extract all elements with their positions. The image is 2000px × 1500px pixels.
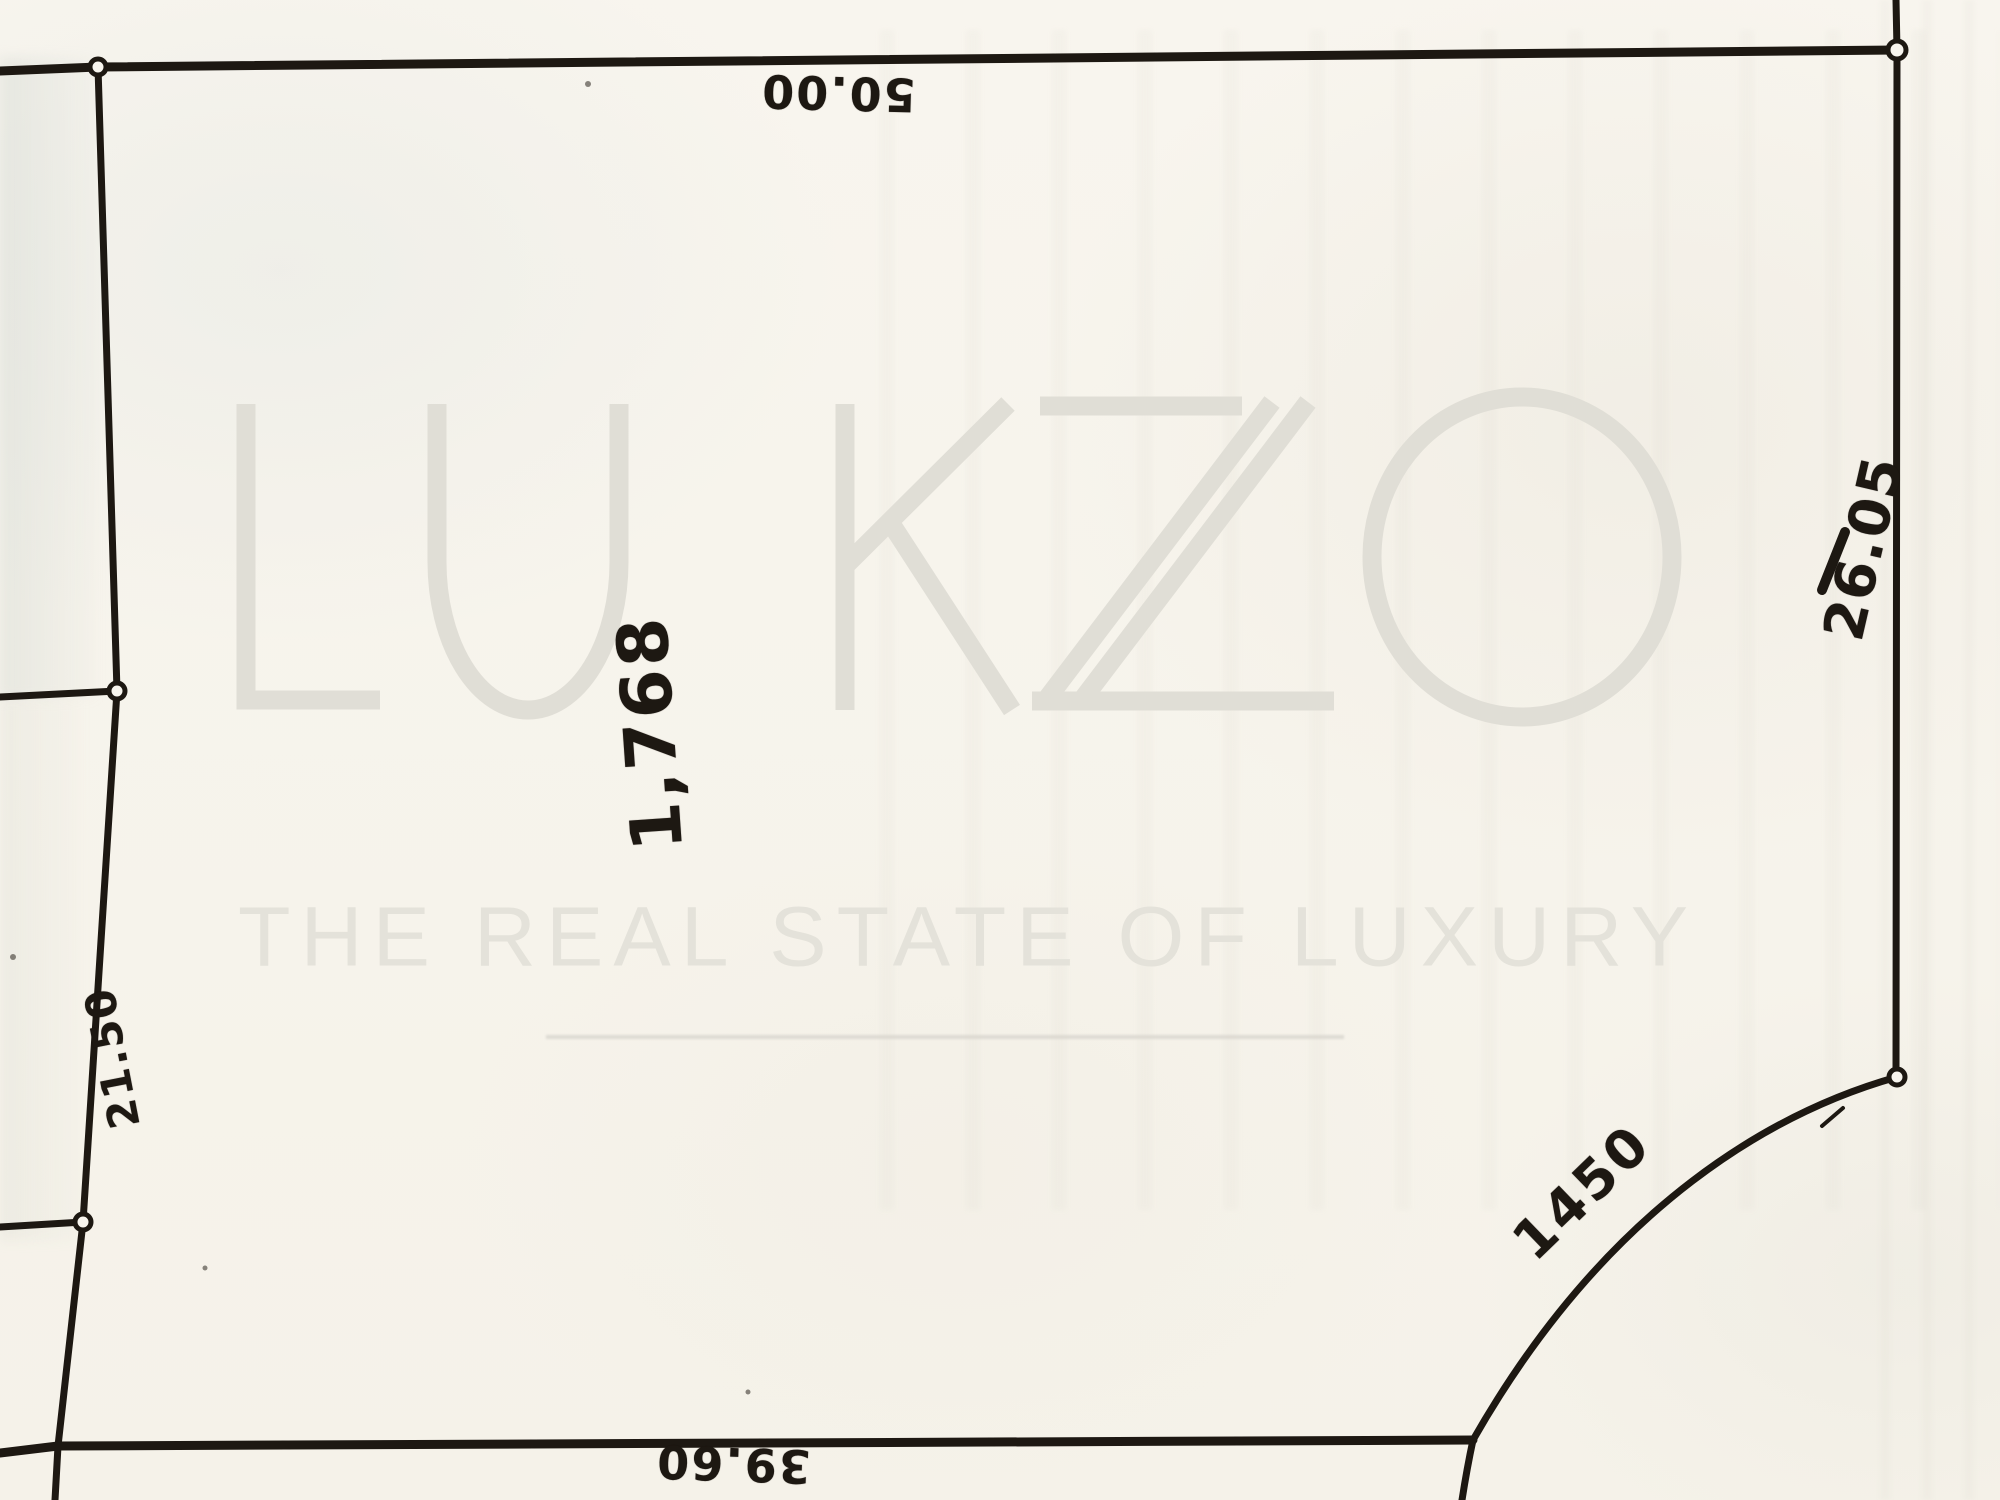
boundary-north-line [0,50,1897,71]
corner-point-nw [90,59,106,75]
ink-speck [10,954,16,960]
tick-mark-on-curve [1822,1108,1843,1126]
dimension-label-south: 39.60 [654,1434,811,1493]
corner-point-west-lower [75,1214,91,1230]
dimension-label-north: 50.00 [760,64,917,122]
ink-speck [203,1266,208,1271]
curve-continuation-below [1462,1440,1473,1500]
corner-point-se-curve-start [1889,1069,1905,1085]
ink-speck [585,81,591,87]
boundary-east-line [1896,50,1897,1077]
ink-speck [746,1390,751,1395]
boundary-west-line [55,67,117,1500]
corner-point-ne [1888,41,1906,59]
scanned-survey-plat: THE REAL STATE OF LUXURY [0,0,2000,1500]
parcel-area-label: 1,768 [601,612,699,854]
parcel-linework [0,0,2000,1500]
abutter-line-mid-left [0,691,117,697]
abutter-line-lower-left [0,1222,83,1227]
corner-point-west-mid [109,683,125,699]
